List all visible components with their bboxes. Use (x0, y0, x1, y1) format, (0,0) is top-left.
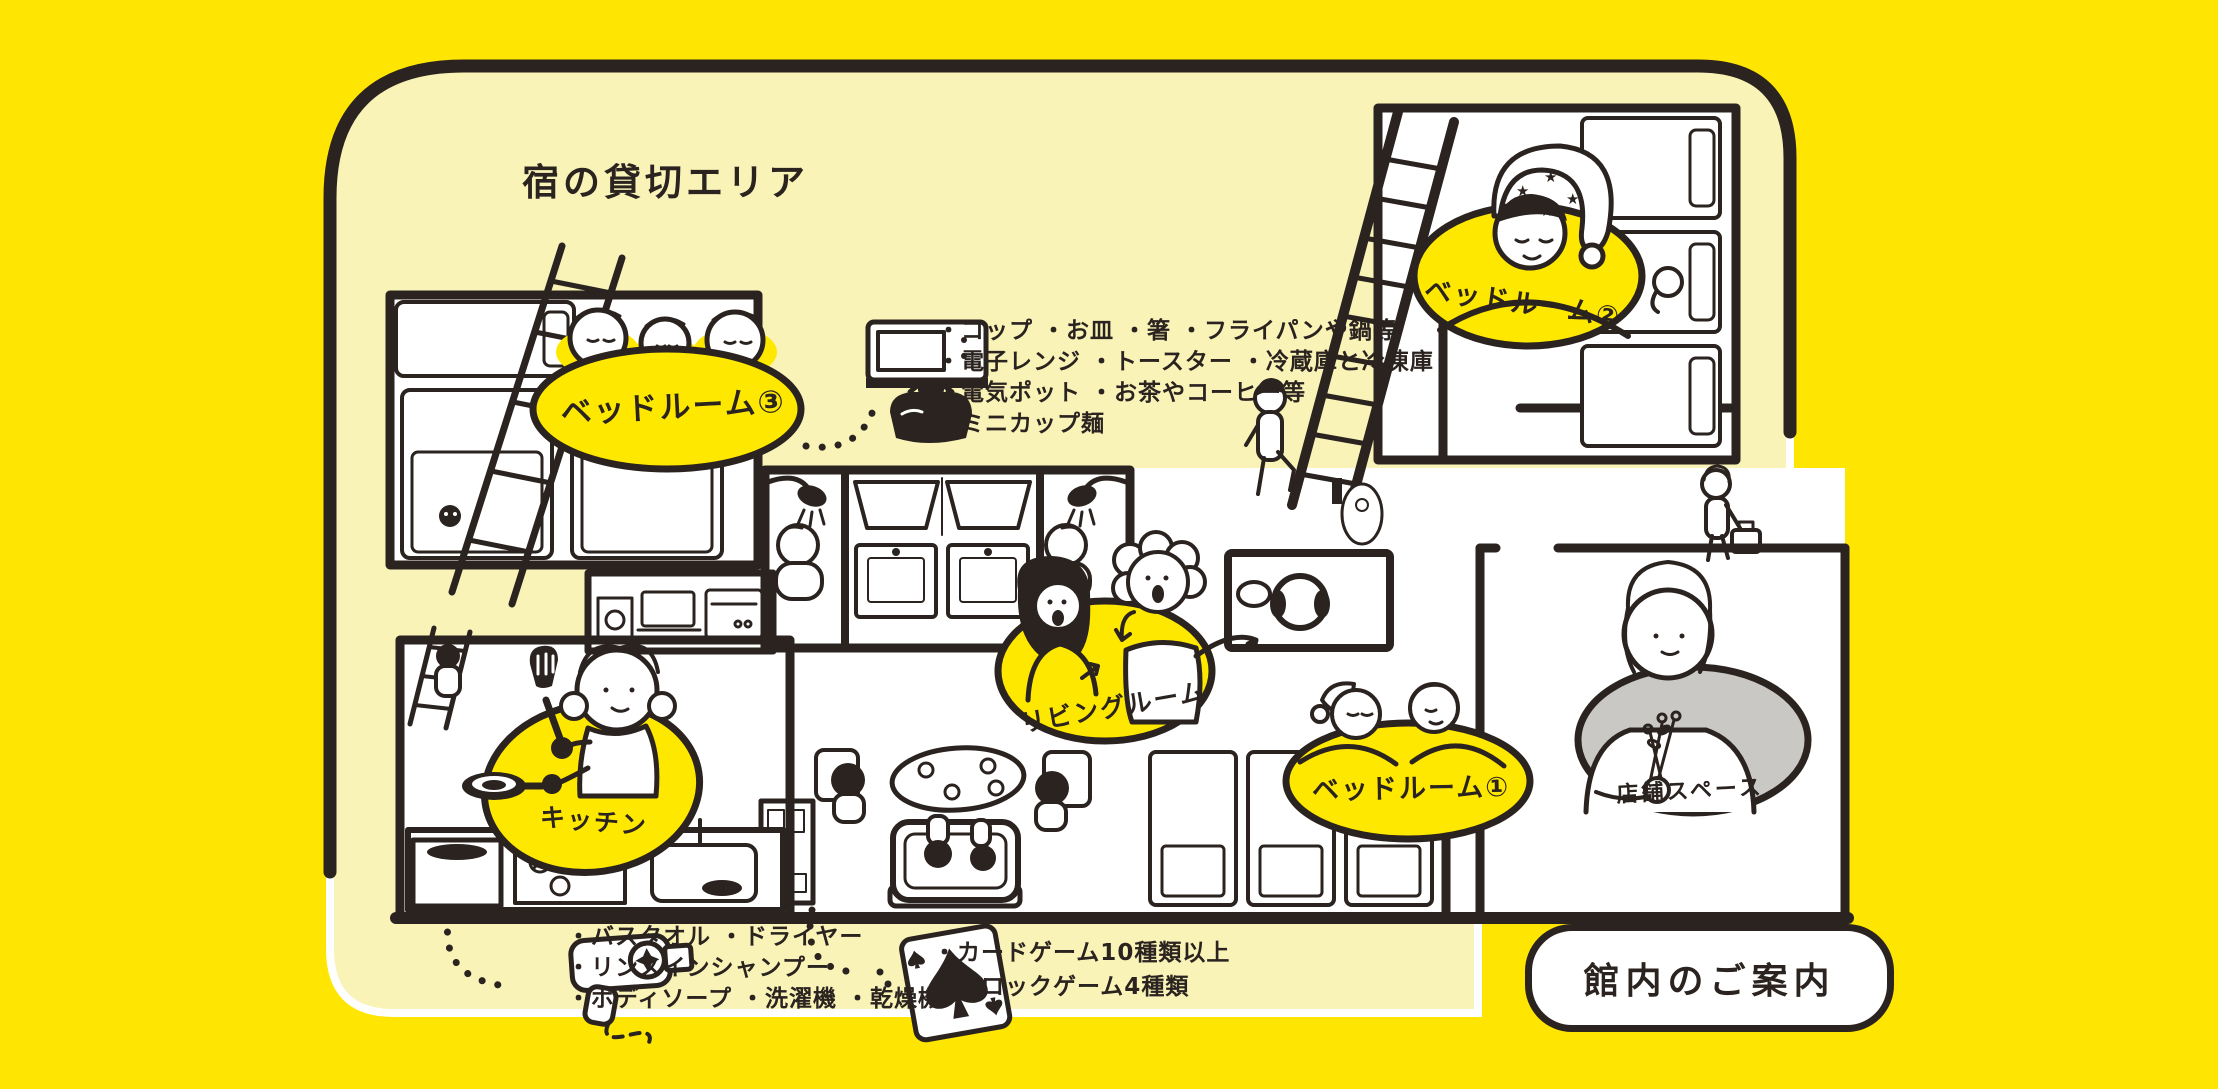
kitchen-amenities-list: ・コップ ・お皿 ・箸 ・フライパンや鍋等 ・電子レンジ ・トースター ・冷蔵庫… (937, 316, 1434, 440)
svg-text:★: ★ (1566, 190, 1579, 208)
bath-amenities-list: ・バスタオル ・ドライヤー ・リンスインシャンプー ・ボディソープ ・洗濯機 ・… (567, 922, 942, 1015)
list-item: ・カードゲーム10種類以上 (933, 936, 1230, 970)
list-item: ・ブロックゲーム4種類 (933, 970, 1230, 1004)
page-title: 宿の貸切エリア (522, 152, 809, 206)
floor-map: ★★ ★★ (0, 0, 2218, 1089)
sink (652, 845, 756, 901)
building-guide-button[interactable]: 館内のご案内 (1525, 924, 1894, 1032)
list-item: ・リンスインシャンプー (567, 953, 942, 984)
floor-plan-illustration: ★★ ★★ (0, 0, 2218, 1089)
svg-text:★: ★ (1516, 182, 1529, 200)
tv-with-headphones (1228, 553, 1390, 648)
svg-text:★: ★ (1544, 168, 1557, 186)
list-item: ・電気ポット ・お茶やコーヒー等 (937, 378, 1434, 409)
mirror (947, 482, 1030, 528)
game-amenities-list: ・カードゲーム10種類以上 ・ブロックゲーム4種類 (933, 936, 1230, 1004)
peeking-kid (439, 505, 461, 527)
sofa (890, 816, 1020, 906)
label-bedroom1: ベッドルーム① (1312, 765, 1511, 807)
list-item: ・ボディソープ ・洗濯機 ・乾燥機 (567, 984, 942, 1015)
list-item: ・電子レンジ ・トースター ・冷蔵庫と冷凍庫 (937, 347, 1434, 378)
list-item: ・バスタオル ・ドライヤー (567, 922, 942, 953)
mirror (855, 482, 938, 528)
list-item: ・コップ ・お皿 ・箸 ・フライパンや鍋等 (937, 316, 1434, 347)
list-item: ・ミニカップ麺 (937, 409, 1434, 440)
svg-text:★: ★ (1540, 202, 1553, 220)
